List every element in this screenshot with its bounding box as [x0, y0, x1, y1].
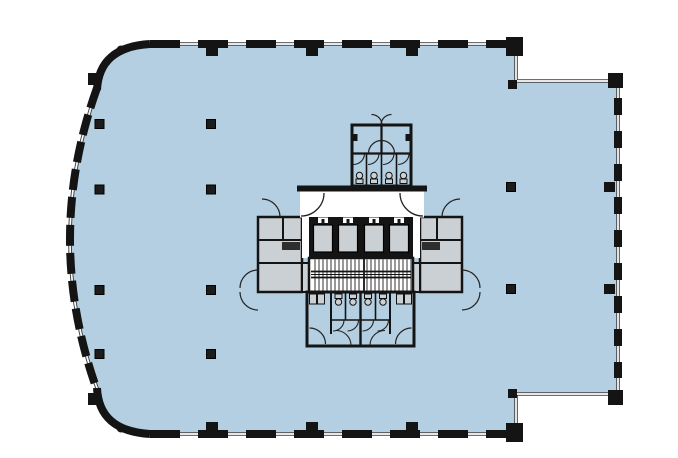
sink-counter: [310, 294, 317, 304]
interior-column: [207, 286, 216, 295]
interior-column: [95, 350, 104, 359]
interior-column: [95, 120, 104, 129]
elevator-car: [365, 225, 384, 252]
toilet-icon: [386, 179, 393, 184]
wing-corner-column: [608, 390, 623, 405]
wall-joint-bottom-left: [88, 393, 96, 405]
interior-column: [207, 120, 216, 129]
core-corridor-right: [413, 217, 420, 258]
toilet-icon: [335, 294, 342, 299]
floor-plan-canvas: [0, 0, 678, 458]
floor-plan-drawing: [0, 0, 678, 458]
bottom-wall-column: [206, 422, 218, 432]
wing-corner-column: [608, 73, 623, 88]
elevator-car: [314, 225, 333, 252]
interior-column: [207, 185, 216, 194]
bottom-wall-column: [406, 422, 418, 432]
setback-column: [506, 423, 523, 442]
elevator-door-nib: [347, 219, 350, 224]
toilet-icon: [380, 294, 387, 299]
core-corridor-left: [302, 217, 309, 258]
round-corner-column: [117, 424, 126, 433]
right-equipment-block: [422, 242, 440, 250]
toilet-icon: [400, 172, 406, 178]
top-wall-column: [306, 46, 318, 56]
top-wall-column: [206, 46, 218, 56]
setback-column: [506, 37, 523, 56]
interior-column: [507, 183, 516, 192]
elevator-door-nib: [373, 219, 376, 224]
toilet-icon: [386, 172, 392, 178]
sink-counter: [318, 294, 325, 304]
core-right-rooms: [420, 217, 462, 292]
right-wall-column: [604, 182, 615, 192]
top-wall-column: [406, 46, 418, 56]
toilet-icon: [350, 299, 356, 305]
elevator-lobby: [300, 192, 424, 218]
wall-joint-top-left: [88, 73, 96, 85]
sink-counter: [397, 294, 404, 304]
toilet-icon: [350, 294, 357, 299]
right-wall-column: [604, 284, 615, 294]
elevator-door-nib: [398, 219, 401, 224]
elevator-car: [390, 225, 409, 252]
core-left-rooms: [258, 217, 302, 292]
bottom-wall-column: [306, 422, 318, 432]
toilet-icon: [400, 179, 407, 184]
notch-column: [508, 80, 517, 89]
notch-column: [508, 389, 517, 398]
toilet-icon: [335, 299, 341, 305]
elevator-car: [339, 225, 358, 252]
toilet-icon: [365, 294, 372, 299]
sink-counter: [405, 294, 412, 304]
toilet-icon: [371, 179, 378, 184]
toilet-icon: [356, 172, 362, 178]
toilet-icon: [356, 179, 363, 184]
restroom-fixture: [354, 134, 358, 141]
round-corner-column: [117, 46, 126, 55]
interior-column: [95, 185, 104, 194]
elevator-door-nib: [322, 219, 325, 224]
interior-column: [95, 286, 104, 295]
restroom-fixture: [406, 134, 410, 141]
left-equipment-block: [282, 242, 300, 250]
toilet-icon: [365, 299, 371, 305]
interior-column: [207, 350, 216, 359]
interior-column: [507, 285, 516, 294]
toilet-icon: [371, 172, 377, 178]
toilet-icon: [380, 299, 386, 305]
